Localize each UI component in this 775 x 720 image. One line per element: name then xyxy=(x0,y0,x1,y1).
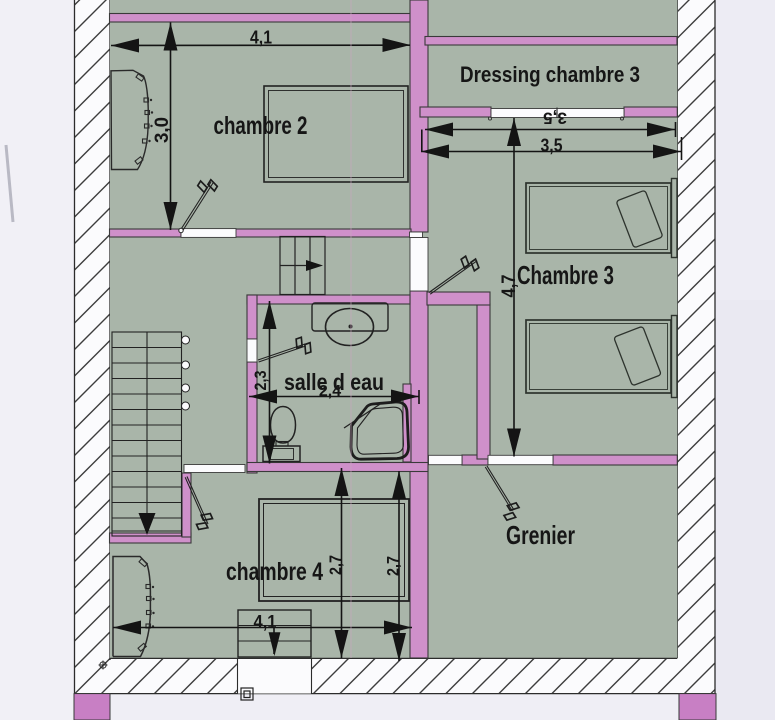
svg-text:Grenier: Grenier xyxy=(506,520,575,550)
svg-text:4,1: 4,1 xyxy=(254,612,277,632)
svg-text:3,0: 3,0 xyxy=(152,117,173,143)
svg-text:2,7: 2,7 xyxy=(384,556,403,576)
svg-text:2,7: 2,7 xyxy=(326,555,345,575)
svg-text:3,5: 3,5 xyxy=(541,136,563,156)
svg-text:chambre 2: chambre 2 xyxy=(214,112,308,140)
svg-text:2,3: 2,3 xyxy=(251,371,270,391)
svg-text:Chambre 3: Chambre 3 xyxy=(517,260,614,290)
svg-text:2,4: 2,4 xyxy=(319,383,341,400)
svg-text:3,5: 3,5 xyxy=(543,109,567,128)
svg-text:4,7: 4,7 xyxy=(499,275,520,298)
svg-text:chambre 4: chambre 4 xyxy=(226,558,323,586)
svg-text:4,1: 4,1 xyxy=(250,28,272,48)
svg-text:Dressing chambre 3: Dressing chambre 3 xyxy=(460,62,640,87)
